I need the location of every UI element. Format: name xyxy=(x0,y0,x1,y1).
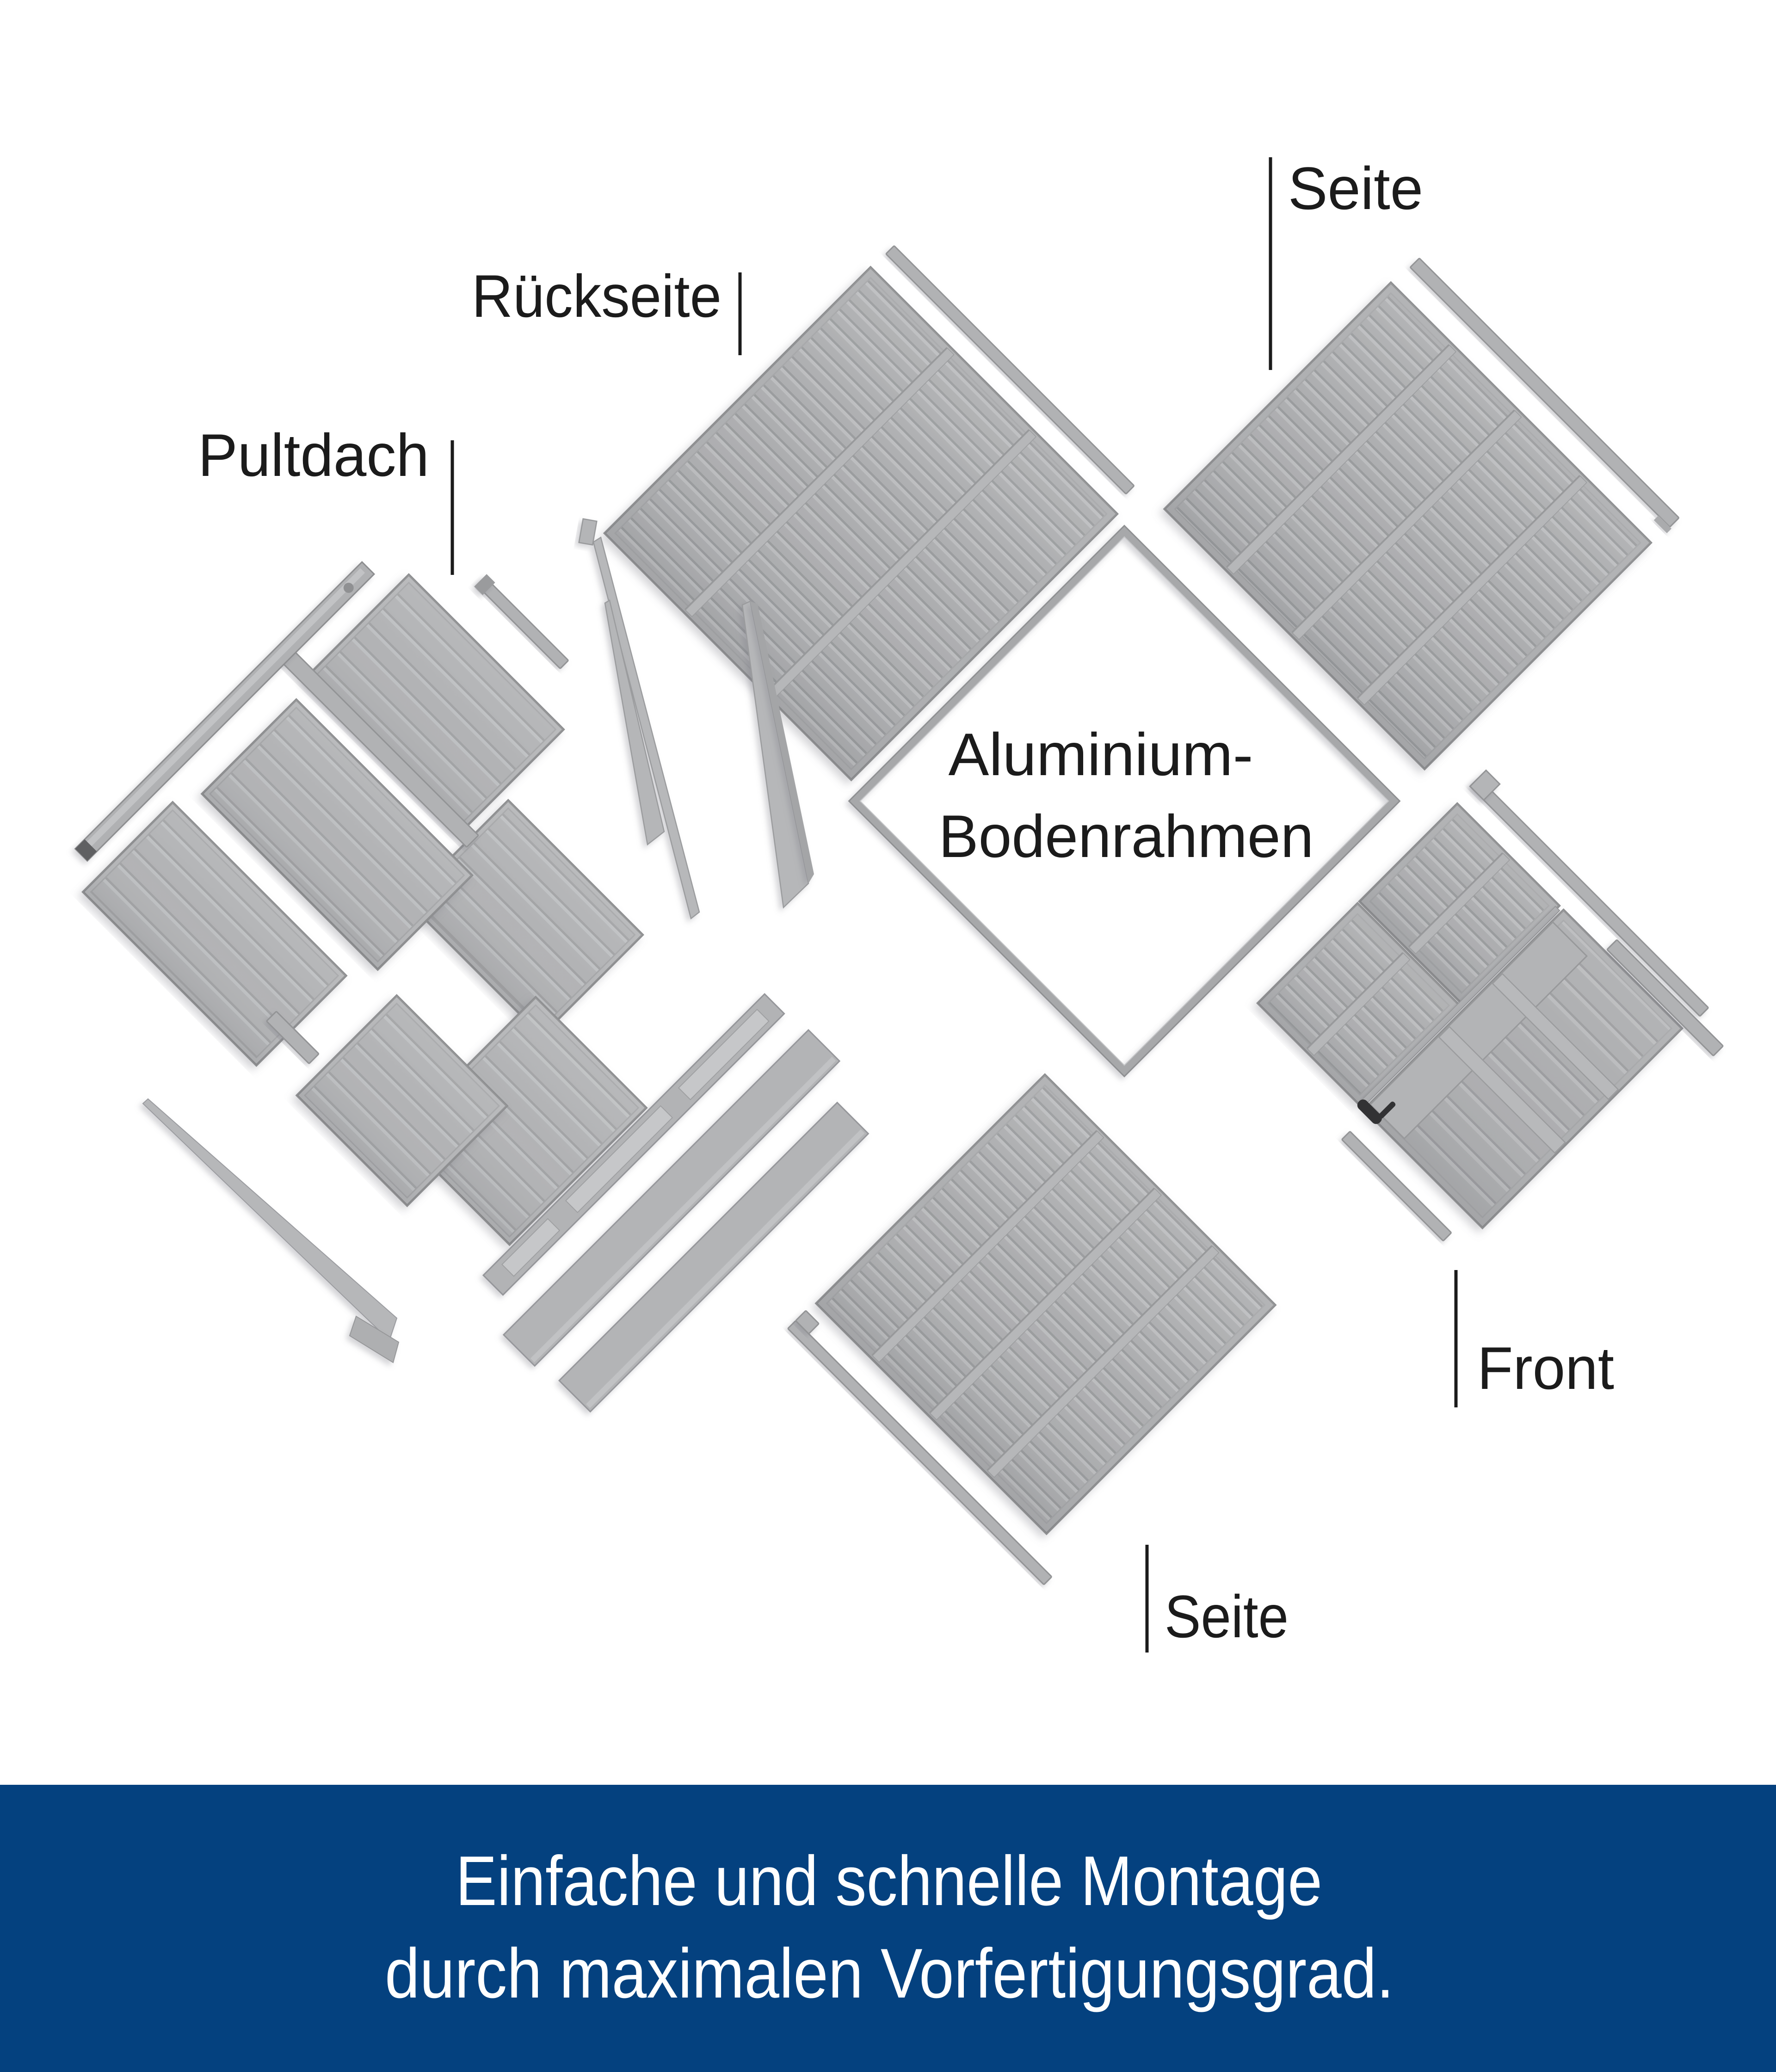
svg-text:durch maximalen Vorfertigungsg: durch maximalen Vorfertigungsgrad. xyxy=(385,1934,1394,2013)
svg-text:Seite: Seite xyxy=(1288,154,1423,222)
svg-text:Front: Front xyxy=(1477,1334,1614,1402)
svg-text:Bodenrahmen: Bodenrahmen xyxy=(939,802,1314,870)
svg-text:Aluminium-: Aluminium- xyxy=(949,721,1253,788)
svg-text:Einfache und schnelle Montage: Einfache und schnelle Montage xyxy=(456,1842,1322,1920)
svg-text:Rückseite: Rückseite xyxy=(472,262,721,330)
svg-text:Seite: Seite xyxy=(1165,1583,1289,1650)
svg-text:Pultdach: Pultdach xyxy=(198,421,429,489)
